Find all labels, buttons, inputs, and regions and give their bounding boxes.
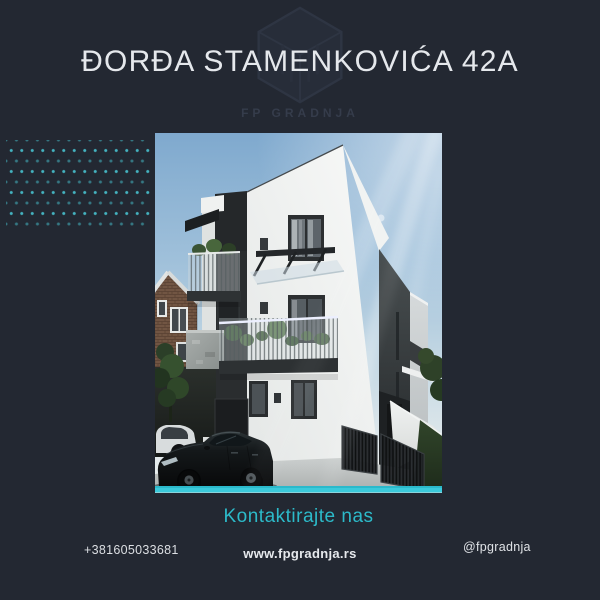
contact-heading: Kontaktirajte nas: [155, 506, 442, 528]
building-render-art: [155, 133, 442, 493]
watermark-label: FP GRADNJA: [0, 106, 600, 120]
dot-pattern-decoration: [6, 140, 150, 226]
building-render-image: [155, 133, 442, 493]
page-title: ĐORĐA STAMENKOVIĆA 42A: [0, 45, 600, 79]
post-canvas: FP GRADNJA ĐORĐA STAMENKOVIĆA 42A: [0, 0, 600, 600]
instagram-handle: @fpgradnja: [463, 540, 531, 554]
